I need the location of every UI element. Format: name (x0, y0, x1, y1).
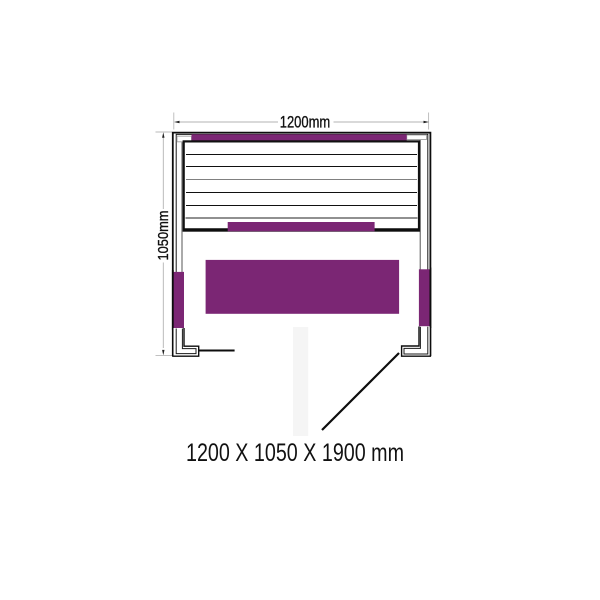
svg-text:1200 X 1050 X 1900 mm: 1200 X 1050 X 1900 mm (186, 439, 404, 467)
svg-text:1200mm: 1200mm (280, 114, 331, 132)
svg-text:1050mm: 1050mm (156, 210, 172, 260)
